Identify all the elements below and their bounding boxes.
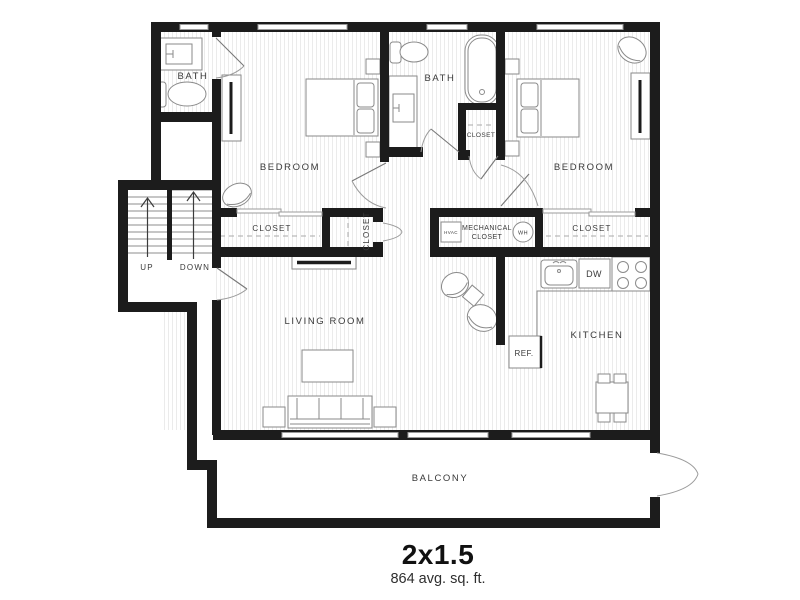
closet-3-label: CLOSET: [467, 132, 495, 139]
floor-plan-drawing: UP DOWN: [0, 0, 800, 600]
coffee-table: [302, 350, 353, 382]
closet-1-label: CLOSET: [252, 224, 291, 233]
kitchen-chair: [598, 413, 610, 422]
side-table: [263, 407, 285, 427]
mechanical-closet-label-line1: MECHANICAL: [462, 225, 512, 232]
bedroom-2-nightstand: [505, 59, 519, 74]
bedroom-2-nightstand: [505, 141, 519, 156]
kitchen-table: [596, 382, 628, 413]
plan-area: 864 avg. sq. ft.: [390, 571, 485, 587]
bedroom-1-nightstand: [366, 59, 380, 74]
water-heater-label: WH: [518, 231, 528, 237]
sofa: [288, 396, 372, 428]
kitchen-chair: [614, 413, 626, 422]
stairs-up-label: UP: [140, 263, 154, 272]
bedroom-1-nightstand: [366, 142, 380, 157]
stairs-down-label: DOWN: [180, 263, 210, 272]
floor-plan-page: UP DOWN: [0, 0, 800, 600]
side-table: [374, 407, 396, 427]
balcony-label: BALCONY: [412, 473, 469, 484]
closet-4-label: CLOSET: [572, 224, 611, 233]
mechanical-closet-label-line2: CLOSET: [472, 234, 503, 241]
dishwasher-label: DW: [586, 269, 602, 279]
bath-1-label: BATH: [177, 71, 208, 82]
closet-2-label: CLOSET: [362, 211, 371, 250]
bath-2-toilet-bowl: [400, 42, 428, 62]
bath-1-toilet-bowl: [168, 82, 206, 106]
plan-name: 2x1.5: [402, 539, 475, 570]
bedroom-2-label: BEDROOM: [554, 162, 614, 173]
kitchen-chair: [614, 374, 626, 383]
plan-title-block: 2x1.5 864 avg. sq. ft.: [390, 539, 485, 587]
kitchen-chair: [598, 374, 610, 383]
bedroom-1-label: BEDROOM: [260, 162, 320, 173]
hvac-label: HVAC: [444, 230, 458, 235]
bath-2-toilet-tank: [390, 42, 401, 63]
kitchen-label: KITCHEN: [571, 330, 624, 341]
living-room-label: LIVING ROOM: [285, 316, 366, 327]
bath-2-label: BATH: [424, 73, 455, 84]
bath-1-vanity: [158, 38, 202, 70]
refrigerator-label: REF.: [515, 349, 534, 358]
